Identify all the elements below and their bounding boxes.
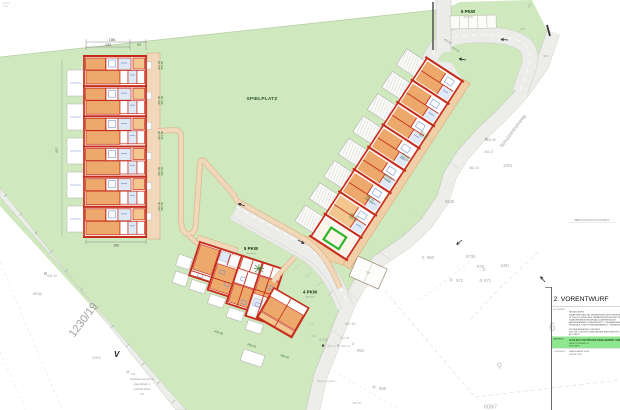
svg-text:ALLGEMEIN: ALLGEMEIN — [554, 308, 566, 311]
svg-text:GELAENDE- UND HOEHENANGABEN LT: GELAENDE- UND HOEHENANGABEN LT. VERMESSU… — [569, 324, 620, 327]
svg-text:4 xx: 4 xx — [309, 322, 315, 326]
svg-text:446.11: 446.11 — [327, 344, 336, 348]
svg-text:403.39: 403.39 — [486, 138, 496, 142]
svg-text:LAGEPLAN M 1:500: LAGEPLAN M 1:500 — [569, 350, 590, 353]
svg-text:AT 1230/19: AT 1230/19 — [569, 333, 580, 336]
svg-text:973b: 973b — [466, 254, 476, 259]
svg-text:463: 463 — [520, 27, 525, 31]
svg-text:5 PKW: 5 PKW — [461, 9, 476, 14]
svg-text:PLANINHALT: PLANINHALT — [554, 350, 567, 353]
svg-text:überdacht: überdacht — [305, 296, 315, 299]
svg-text:467.16: 467.16 — [345, 322, 355, 326]
svg-text:2. VORENTWURF: 2. VORENTWURF — [554, 296, 609, 303]
svg-text:468.65: 468.65 — [352, 401, 362, 405]
svg-text:464.37: 464.37 — [484, 150, 494, 154]
svg-text:überdacht: überdacht — [463, 16, 473, 19]
svg-text:472: 472 — [131, 373, 136, 376]
svg-text:457.58: 457.58 — [340, 336, 350, 340]
svg-text:853p: 853p — [33, 291, 43, 296]
svg-text:471: 471 — [140, 393, 145, 396]
svg-text:459.50: 459.50 — [160, 166, 164, 176]
svg-text:960.21: 960.21 — [341, 344, 351, 348]
svg-text:464.33: 464.33 — [469, 166, 479, 170]
svg-text:Q: Q — [497, 363, 502, 369]
svg-text:Stadtgemeinde W: Stadtgemeinde W — [130, 377, 154, 381]
svg-text:6: 6 — [549, 320, 556, 334]
svg-text:964b: 964b — [445, 199, 455, 204]
svg-text:459.50: 459.50 — [160, 60, 164, 70]
svg-text:BAUHERR: BAUHERR — [554, 338, 564, 341]
svg-text:DATUM: 2021: DATUM: 2021 — [569, 353, 583, 356]
svg-text:462: 462 — [543, 54, 548, 58]
svg-text:Hauptplatz 1: Hauptplatz 1 — [134, 382, 151, 386]
svg-text:958: 958 — [379, 386, 387, 391]
svg-text:609/7: 609/7 — [484, 405, 497, 410]
svg-text:186: 186 — [113, 244, 119, 248]
svg-text:SPIELPLATZ: SPIELPLATZ — [247, 96, 278, 102]
svg-text:133: 133 — [105, 43, 111, 47]
svg-text:ALEX BAU UND PROJEKTMANAGEMENT: ALEX BAU UND PROJEKTMANAGEMENT GMBH — [569, 339, 620, 342]
svg-text:971: 971 — [484, 278, 492, 283]
svg-text:überdacht: überdacht — [246, 252, 256, 255]
svg-text:963: 963 — [427, 255, 435, 260]
svg-text:962: 962 — [357, 348, 365, 353]
svg-text:972: 972 — [456, 278, 464, 283]
svg-text:53: 53 — [137, 43, 141, 47]
svg-text:1002: 1002 — [92, 355, 102, 360]
svg-text:186: 186 — [109, 37, 116, 42]
svg-text:459.50: 459.50 — [160, 201, 164, 211]
svg-text:A-8160 Weiz: A-8160 Weiz — [133, 387, 151, 391]
svg-text:5 PKW: 5 PKW — [244, 246, 259, 251]
svg-text:1001: 1001 — [500, 263, 510, 268]
svg-text:39a: 39a — [311, 334, 316, 338]
svg-text:997: 997 — [55, 147, 59, 153]
svg-text:V: V — [114, 350, 120, 359]
svg-text:Begrünungslauf: Begrünungslauf — [317, 379, 335, 383]
svg-text:4 PKW: 4 PKW — [303, 290, 318, 295]
svg-text:459.50: 459.50 — [160, 95, 164, 105]
svg-text:444.44: 444.44 — [47, 274, 57, 278]
svg-text:459.50: 459.50 — [160, 130, 164, 140]
svg-text:8160 WEIZ: 8160 WEIZ — [569, 346, 580, 348]
svg-text:GRUNDLAGEN:: GRUNDLAGEN: — [569, 311, 585, 314]
svg-text:Φ 238: Φ 238 — [319, 338, 328, 342]
svg-text:1001: 1001 — [503, 163, 513, 168]
svg-text:BEBAUUNGSPLAN FA KAMPUS: BEBAUUNGSPLAN FA KAMPUS — [574, 219, 610, 222]
